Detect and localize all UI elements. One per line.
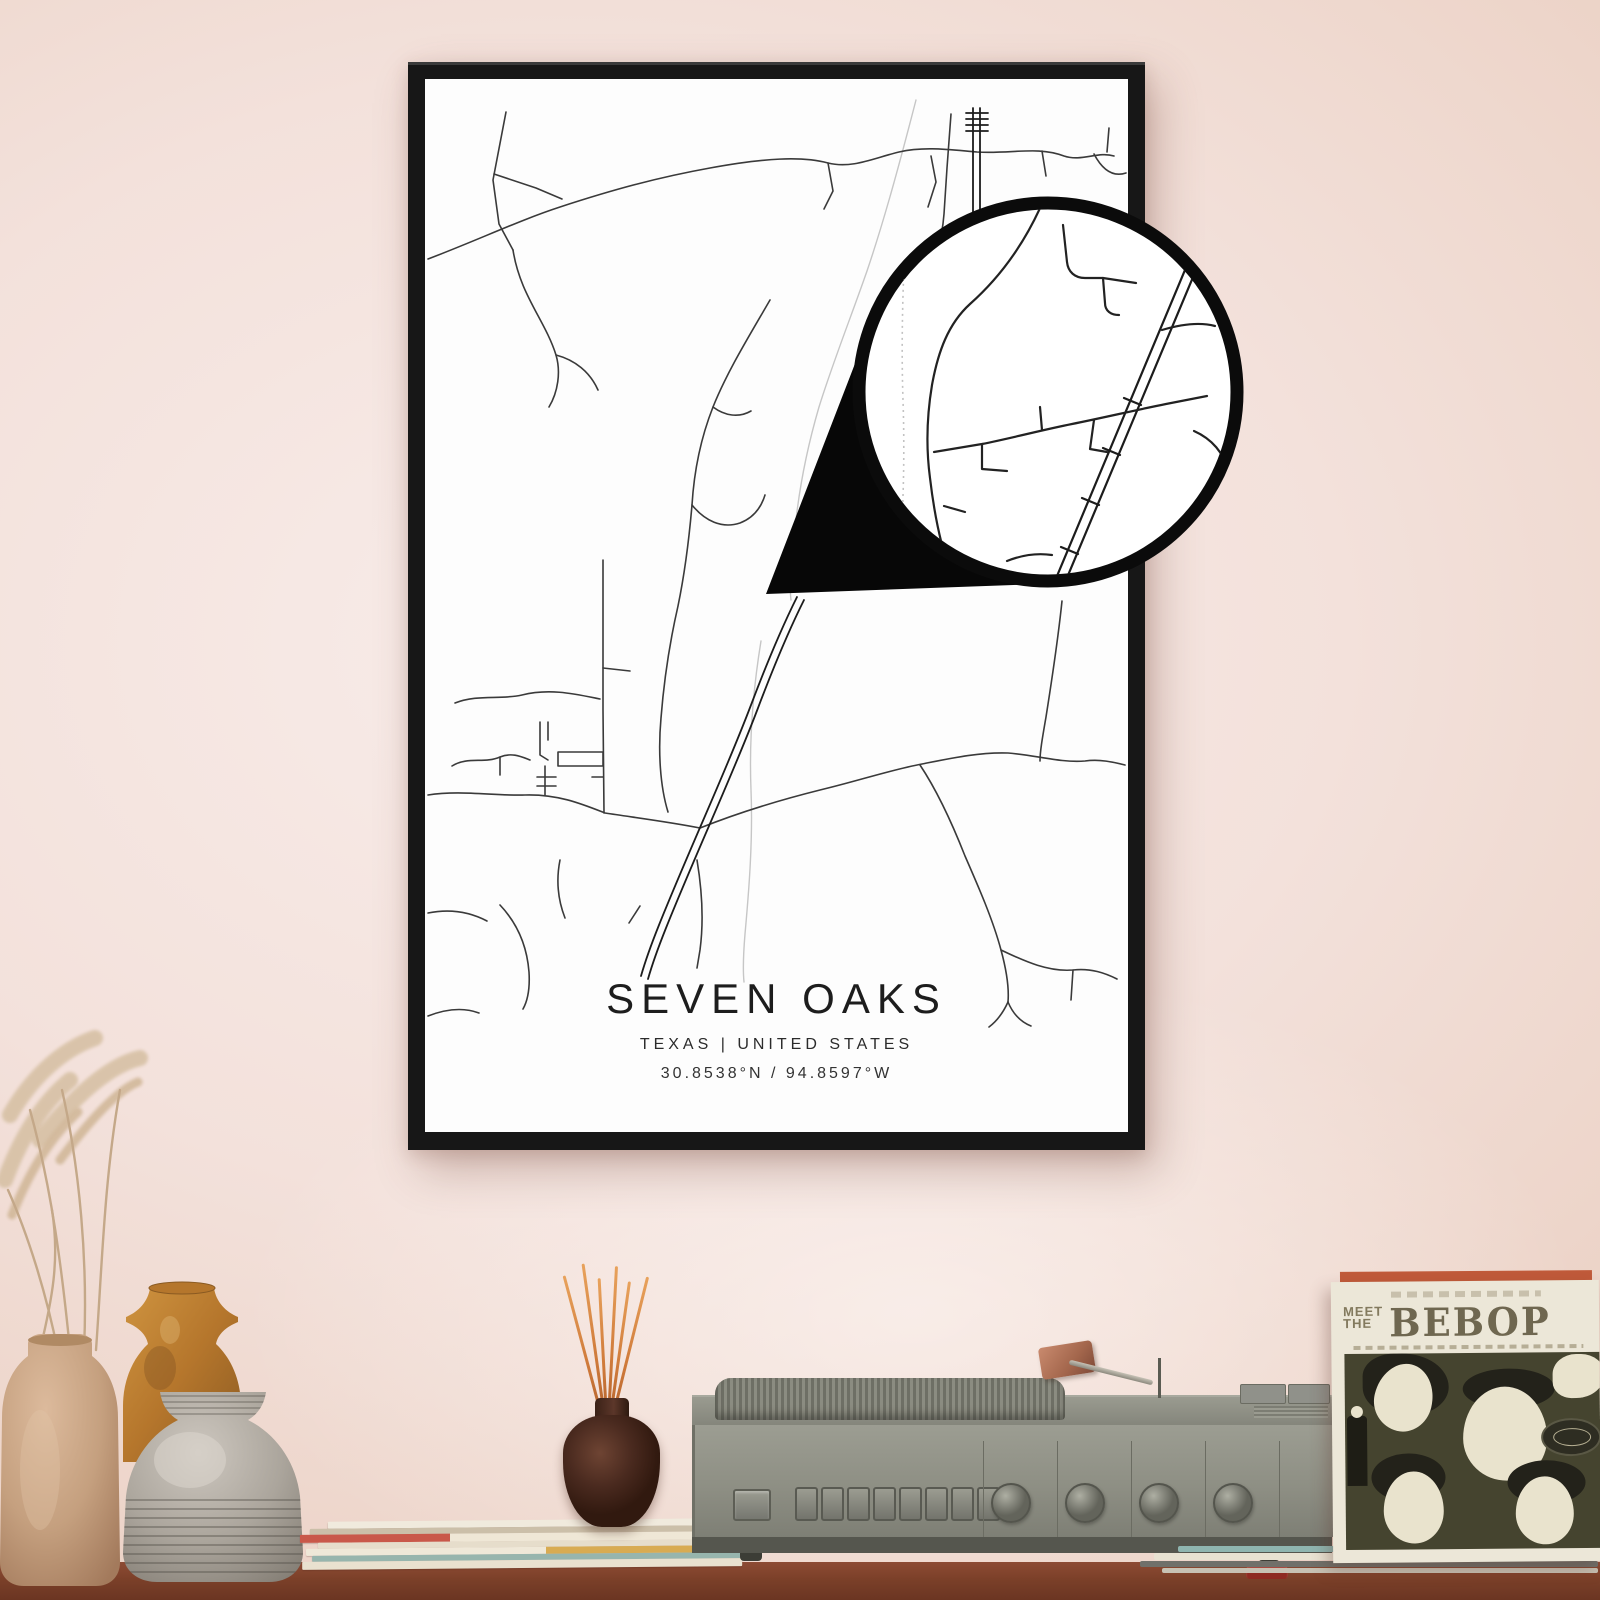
flat-record	[1162, 1568, 1598, 1573]
tan-vase	[0, 1334, 120, 1586]
poster-coordinates: 30.8538°N / 94.8597°W	[425, 1065, 1128, 1083]
preset-button	[847, 1487, 870, 1521]
room-scene: SEVEN OAKS TEXAS | UNITED STATES 30.8538…	[0, 0, 1600, 1600]
tonearm-pivot	[1158, 1358, 1161, 1398]
frame-highlight	[408, 62, 1145, 65]
deck-module	[1288, 1384, 1330, 1404]
sleeve-title: MEET THE BEBOP	[1343, 1304, 1551, 1340]
character-face	[1515, 1476, 1574, 1545]
preset-button	[873, 1487, 896, 1521]
preset-button	[925, 1487, 948, 1521]
panel-divider	[1205, 1441, 1206, 1537]
panel-divider	[1057, 1441, 1058, 1537]
preset-button	[899, 1487, 922, 1521]
incense-bottle	[563, 1415, 660, 1527]
tonearm-cartridge	[1038, 1340, 1096, 1380]
panel-divider	[1131, 1441, 1132, 1537]
sleeve-band-name: BEBOP	[1389, 1303, 1551, 1340]
power-button	[733, 1489, 771, 1521]
control-knob	[1213, 1483, 1253, 1523]
sleeve-title-meet-the: MEET THE	[1343, 1306, 1383, 1330]
record-sleeve: MEET THE BEBOP	[1331, 1280, 1600, 1563]
pampas-grass	[5, 1038, 140, 1352]
deck-module	[1240, 1384, 1286, 1404]
panel-divider	[983, 1441, 984, 1537]
control-knob	[1139, 1483, 1179, 1523]
player-front-panel	[692, 1425, 1338, 1537]
preset-button-row	[795, 1487, 1000, 1521]
vase-still-life	[0, 1020, 330, 1600]
control-knob	[1065, 1483, 1105, 1523]
dog-face	[1552, 1354, 1600, 1398]
control-knob	[991, 1483, 1031, 1523]
preset-button	[795, 1487, 818, 1521]
poster-title: SEVEN OAKS	[425, 975, 1128, 1023]
preset-button	[951, 1487, 974, 1521]
zoom-callout-circle	[859, 203, 1237, 581]
deck-vents	[1254, 1406, 1328, 1418]
poster-region: TEXAS | UNITED STATES	[425, 1036, 1128, 1054]
preset-button	[821, 1487, 844, 1521]
panel-divider	[1279, 1441, 1280, 1537]
sleeve-label-strip	[1391, 1290, 1541, 1297]
turntable-platter	[715, 1378, 1065, 1420]
record-player	[692, 1340, 1332, 1562]
incense-diffuser	[540, 1240, 700, 1540]
poster-caption: SEVEN OAKS TEXAS | UNITED STATES 30.8538…	[425, 975, 1128, 1083]
sleeve-word-the: THE	[1343, 1318, 1383, 1330]
sleeve-figure	[1347, 1416, 1368, 1486]
player-foot	[740, 1553, 762, 1561]
sleeve-subtitle-strip	[1353, 1344, 1583, 1350]
sleeve-logo-badge	[1541, 1418, 1600, 1457]
sleeve-artwork	[1344, 1352, 1600, 1550]
